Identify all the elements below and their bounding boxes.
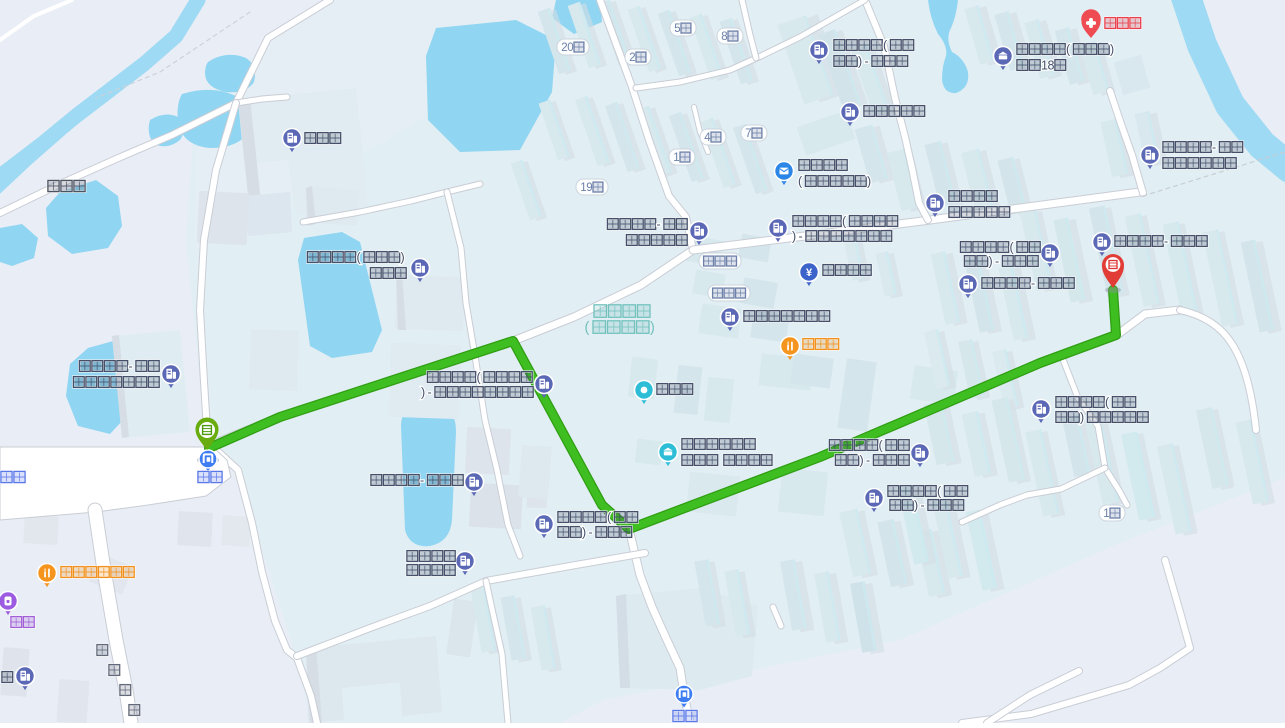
svg-text:¥: ¥ (806, 267, 813, 279)
svg-text:2: 2 (629, 52, 635, 64)
svg-text:): ) (401, 251, 405, 265)
svg-text:1: 1 (673, 152, 679, 164)
svg-text:4: 4 (704, 132, 711, 144)
svg-text:9: 9 (586, 182, 592, 194)
svg-text:-: - (129, 360, 133, 374)
svg-text:1: 1 (1103, 508, 1109, 520)
svg-text:): ) (582, 526, 586, 540)
svg-text:-: - (866, 454, 870, 468)
svg-text:8: 8 (1048, 59, 1055, 73)
svg-text:): ) (914, 499, 918, 513)
svg-text:): ) (858, 55, 862, 69)
svg-text:8: 8 (721, 31, 727, 43)
svg-text:-: - (995, 255, 999, 269)
svg-text:-: - (921, 499, 925, 513)
svg-text:): ) (792, 230, 796, 244)
svg-text:7: 7 (745, 128, 751, 140)
svg-text:): ) (650, 320, 655, 336)
svg-text:-: - (1164, 235, 1168, 249)
svg-text:-: - (589, 526, 593, 540)
svg-text:-: - (420, 474, 424, 488)
svg-text:): ) (860, 454, 864, 468)
svg-text:-: - (865, 55, 869, 69)
svg-text:(: ( (585, 320, 590, 336)
svg-text:): ) (1080, 411, 1084, 425)
svg-text:-: - (799, 230, 803, 244)
svg-text:-: - (1031, 277, 1035, 291)
svg-text:): ) (421, 386, 425, 400)
svg-text:-: - (428, 386, 432, 400)
svg-text:-: - (657, 218, 661, 232)
svg-text:-: - (1212, 141, 1216, 155)
svg-text:0: 0 (567, 42, 573, 54)
svg-text:5: 5 (674, 23, 680, 35)
svg-text:): ) (867, 175, 871, 189)
svg-text:): ) (989, 255, 993, 269)
svg-text:): ) (1110, 43, 1114, 57)
